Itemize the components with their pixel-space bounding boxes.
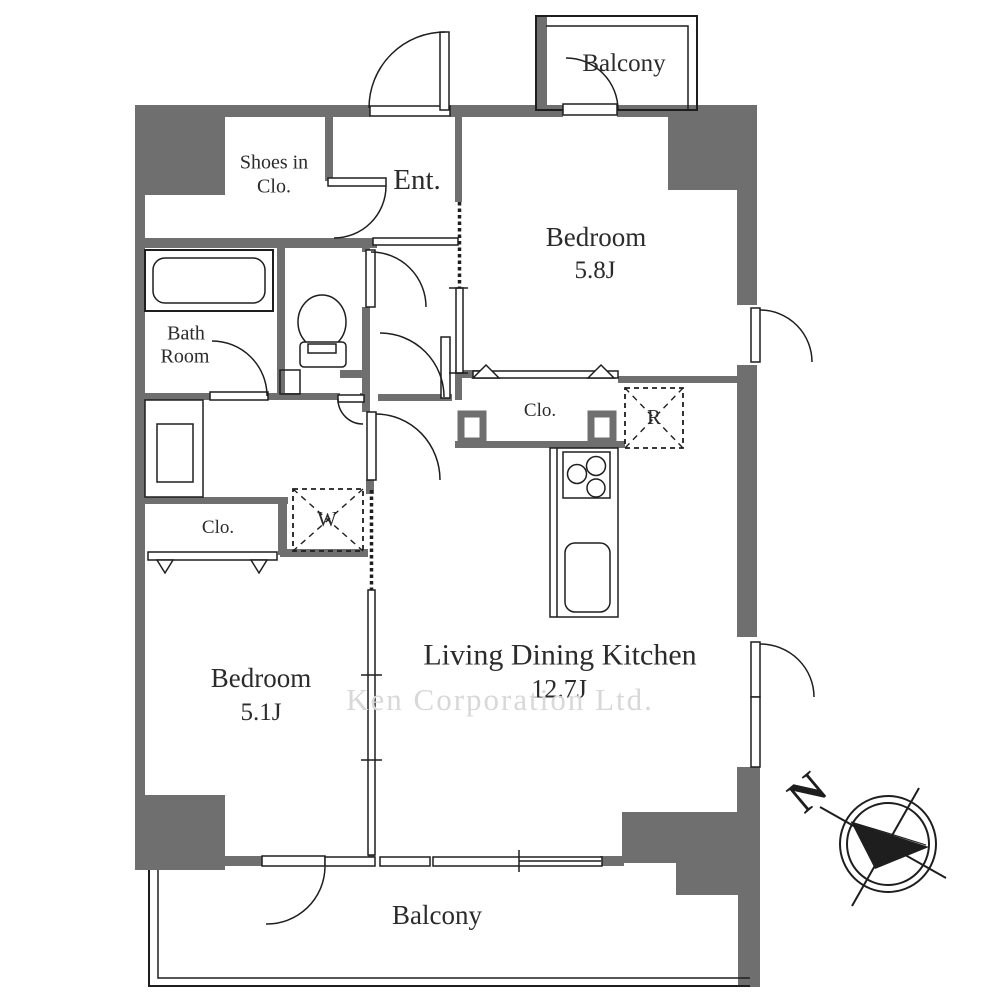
closet-wall-stub-right: [591, 414, 613, 441]
washroom-door: [338, 395, 364, 424]
kitchen-counter: [550, 448, 618, 617]
toilet-door: [366, 250, 426, 307]
floor-plan: Balcony Shoes in Clo. Ent. Bedroom 5.8J …: [0, 0, 1000, 1000]
bottom-window-1: [325, 857, 375, 866]
label-bedroom1-name: Bedroom: [546, 223, 647, 251]
label-bath-2: Room: [161, 347, 210, 368]
bedroom2-ldk-partition: [361, 490, 382, 855]
closet-upper-folding-door: [473, 365, 618, 378]
hall-bedroom1-partition: [449, 202, 468, 373]
ldk-side-door: [751, 642, 814, 697]
label-entrance: Ent.: [393, 165, 441, 195]
closet-wall-stub-left: [461, 414, 483, 441]
bedroom1-side-door: [751, 308, 812, 362]
washbasin: [145, 400, 203, 497]
bathroom-door: [210, 341, 268, 400]
label-closet-lower: Clo.: [202, 518, 234, 538]
toilet: [280, 295, 346, 394]
entrance-door: [369, 32, 450, 116]
living-room-door: [367, 412, 440, 480]
closet-lower-folding-door: [148, 552, 277, 573]
label-bedroom1-size: 5.8J: [575, 258, 616, 284]
kitchen-sink: [565, 543, 610, 612]
hallway-door: [380, 333, 450, 398]
label-washing-machine: W: [317, 508, 337, 530]
entrance-step: [373, 238, 458, 245]
bedroom2-balcony-door: [262, 856, 325, 924]
side-window: [751, 697, 760, 767]
label-balcony-top: Balcony: [582, 51, 665, 77]
compass-icon: [820, 788, 946, 906]
label-shoes-closet-1: Shoes in: [240, 153, 308, 174]
label-refrigerator: R: [647, 406, 661, 428]
watermark: Ken Corporation Ltd.: [346, 682, 654, 718]
shoes-closet-door: [328, 178, 386, 238]
stove-burners: [563, 452, 610, 498]
label-shoes-closet-2: Clo.: [257, 177, 291, 198]
label-balcony-bottom: Balcony: [392, 901, 482, 929]
label-bedroom2-name: Bedroom: [211, 664, 312, 692]
label-ldk-name: Living Dining Kitchen: [423, 639, 696, 671]
label-bath-1: Bath: [167, 324, 205, 345]
label-bedroom2-size: 5.1J: [241, 700, 282, 726]
label-closet-upper: Clo.: [524, 401, 556, 421]
bottom-window-2: [380, 857, 430, 866]
floor-plan-drawing: [0, 0, 1000, 1000]
bathtub: [145, 250, 273, 311]
